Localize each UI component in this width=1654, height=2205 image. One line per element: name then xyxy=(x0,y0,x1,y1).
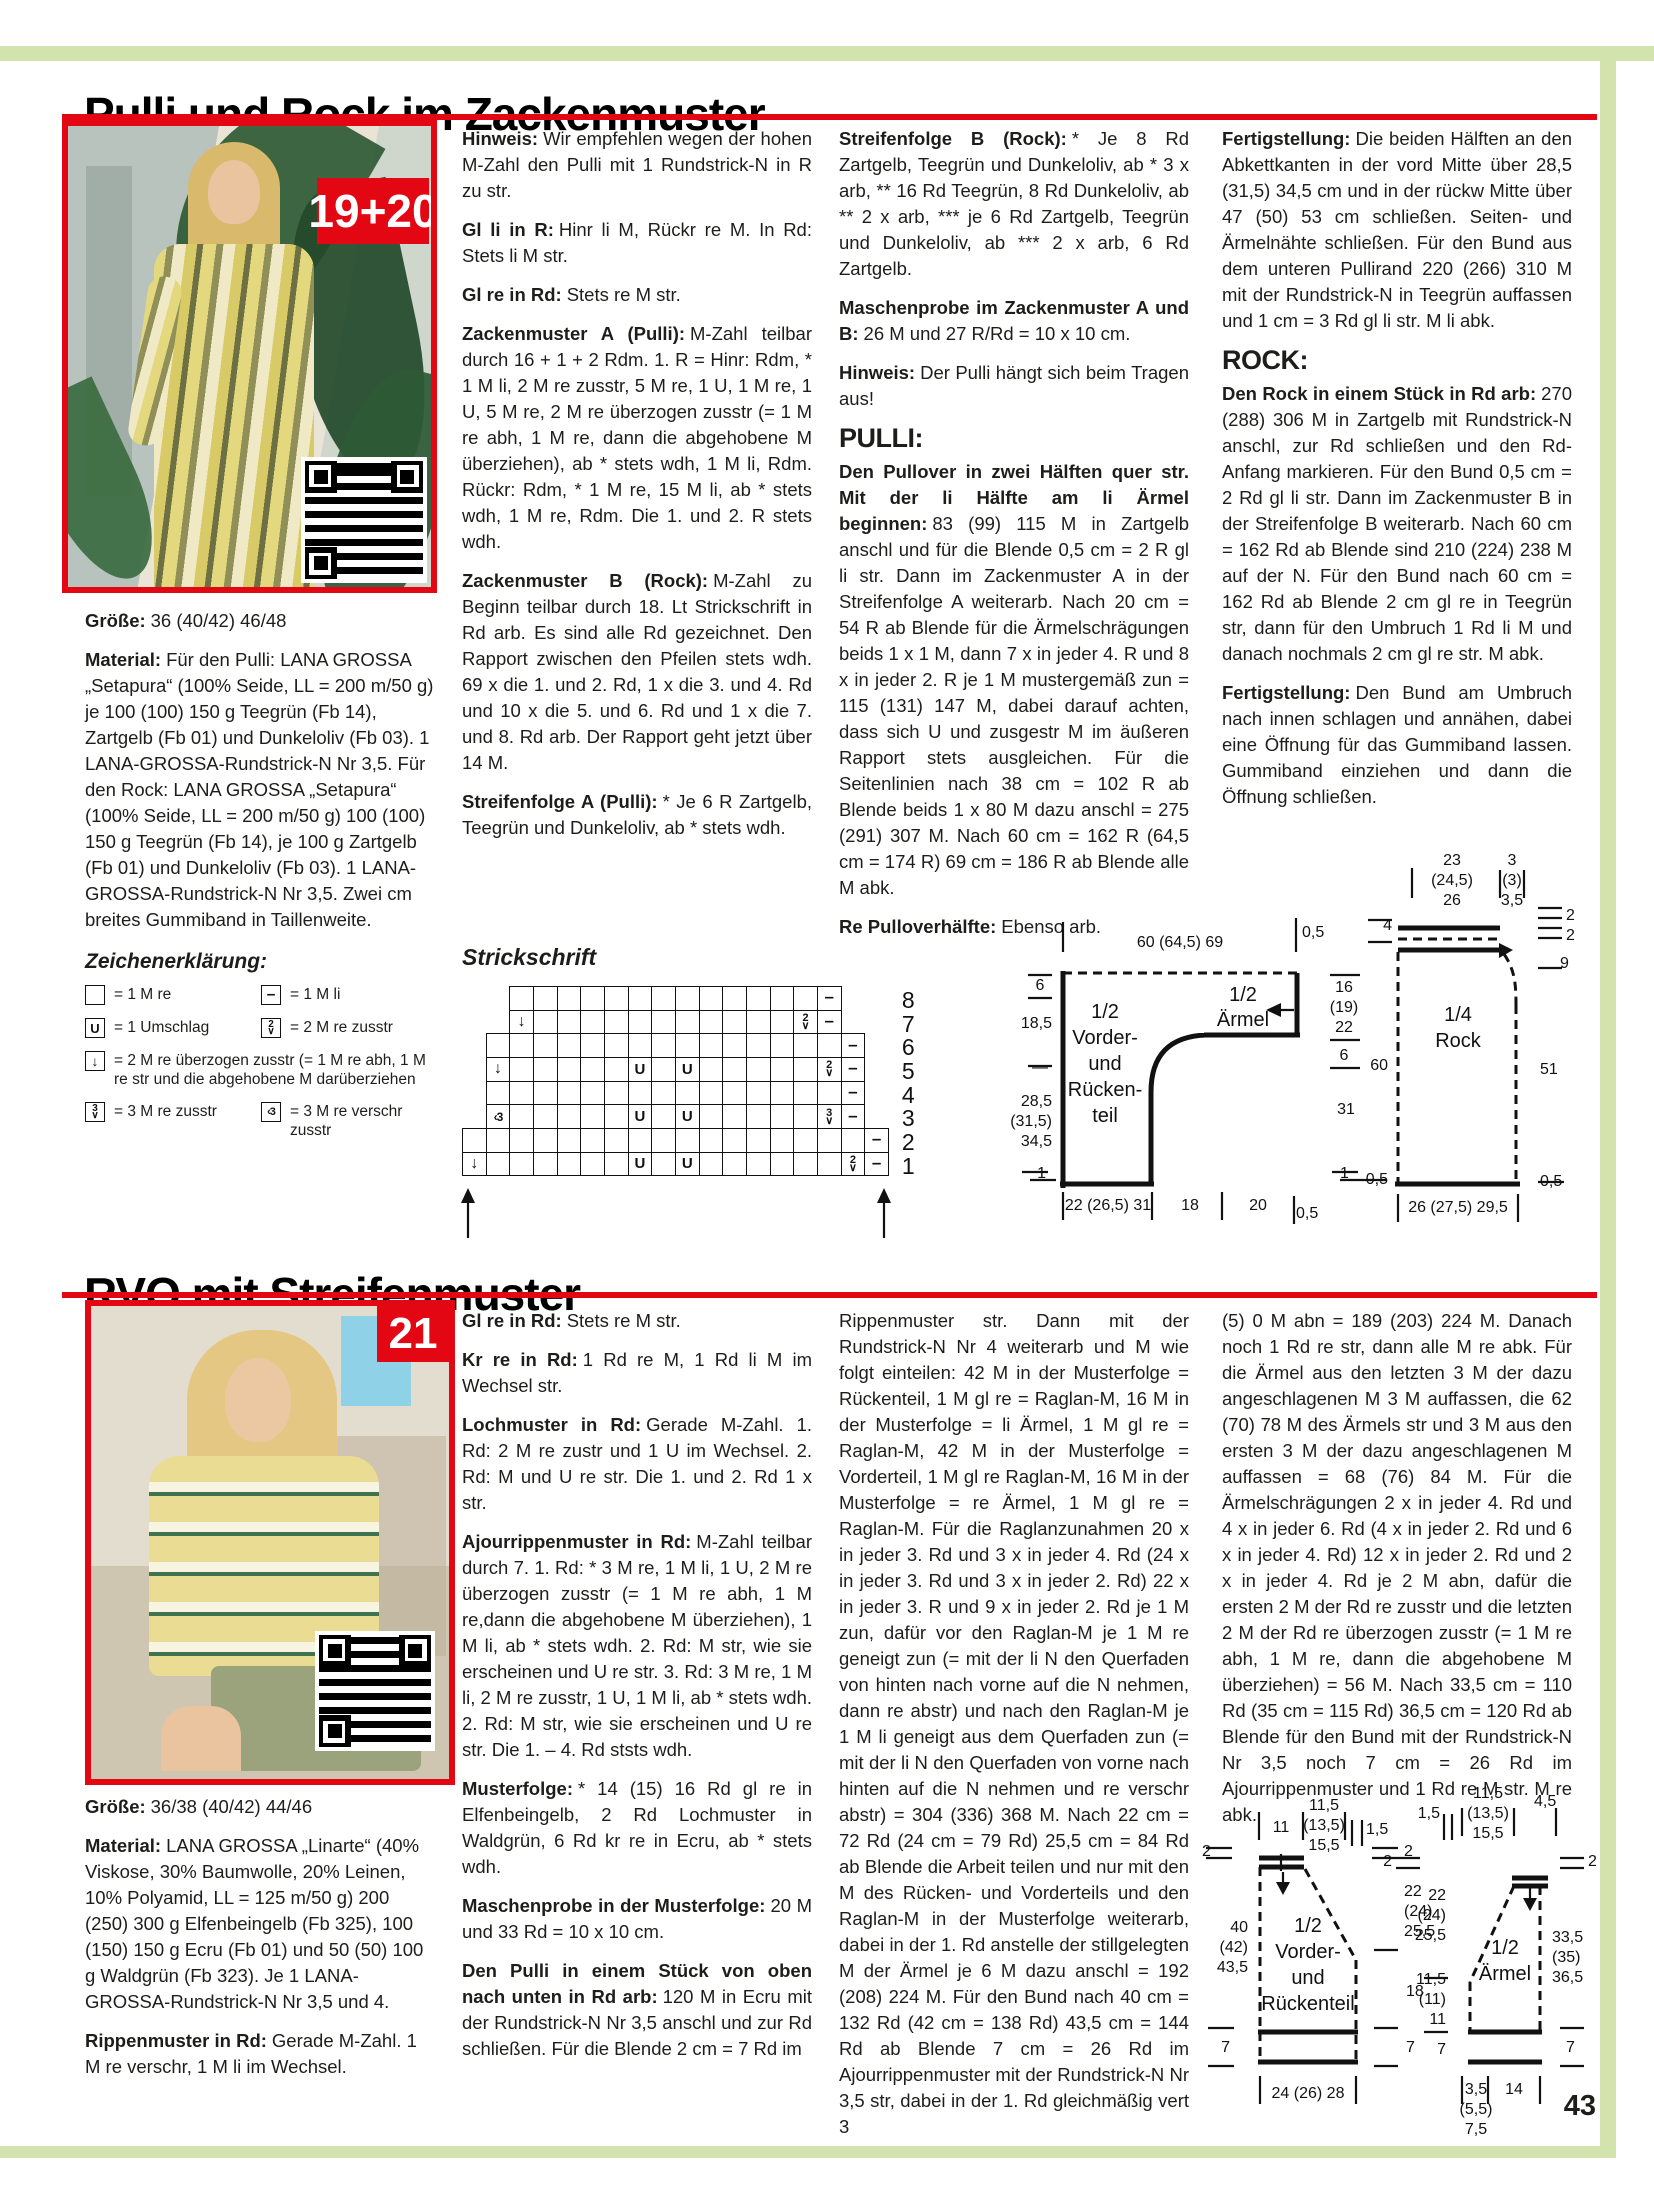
chart-cell xyxy=(817,986,842,1011)
chart-cell xyxy=(864,1128,889,1153)
paragraph: Zackenmuster B (Rock):M-Zahl zu Beginn t… xyxy=(462,568,812,776)
measurement-label: 60 (64,5) 69 xyxy=(1137,935,1223,951)
measurement-label: 2 xyxy=(1588,1854,1597,1870)
chart-cell xyxy=(628,1010,653,1035)
chart-cell xyxy=(651,1104,676,1129)
measurement-label: 18 xyxy=(1181,1198,1199,1214)
chart-cell xyxy=(557,1033,582,1058)
section1-column4: Fertigstellung:Die beiden Hälften an den… xyxy=(1222,126,1572,823)
chart-cell xyxy=(841,1033,866,1058)
paragraph: Fertigstellung:Den Bund am Umbruch nach … xyxy=(1222,680,1572,810)
measurement-label: 2 xyxy=(1404,1844,1413,1860)
chart-cell xyxy=(486,1033,511,1058)
chart-cell xyxy=(817,1057,842,1082)
chart-cell xyxy=(699,1128,724,1153)
chart-cell xyxy=(722,1010,747,1035)
chart-cell xyxy=(509,1033,534,1058)
qr-code xyxy=(301,457,427,583)
chart-cell xyxy=(628,986,653,1011)
model-face xyxy=(208,160,260,224)
chart-cell xyxy=(793,1057,818,1082)
chart-cell xyxy=(722,1152,747,1177)
chart-title: Strickschrift xyxy=(462,944,596,971)
legend-item: = 1 M li xyxy=(261,985,437,1005)
chart-cell xyxy=(675,986,700,1011)
photo-model-striped-sweater: 21 xyxy=(85,1300,455,1785)
paragraph: Gl li in R:Hinr li M, Rückr re M. In Rd:… xyxy=(462,217,812,269)
paragraph: Kr re in Rd:1 Rd re M, 1 Rd li M im Wech… xyxy=(462,1347,812,1399)
chart-cell xyxy=(793,1128,818,1153)
measurement-label: 11 xyxy=(1273,1820,1290,1836)
instructions-paragraph: (5) 0 M abn = 189 (203) 224 M. Danach no… xyxy=(1222,1308,1572,1828)
paragraph: Maschenprobe in der Musterfolge:20 M und… xyxy=(462,1893,812,1945)
section2-column1: Größe:36/38 (40/42) 44/46 Material:LANA … xyxy=(85,1794,437,2093)
measurement-label: Vorder- xyxy=(1275,1942,1341,1962)
chart-cell xyxy=(604,1081,629,1106)
chart-cell xyxy=(841,1128,866,1153)
chart-cell xyxy=(770,1057,795,1082)
paragraph: Streifenfolge B (Rock):* Je 8 Rd Zartgel… xyxy=(839,126,1189,282)
size-line: Größe:36 (40/42) 46/48 xyxy=(85,608,437,634)
chart-cell xyxy=(651,1152,676,1177)
measurement-label: (11) xyxy=(1419,1992,1446,2008)
chart-cell xyxy=(770,986,795,1011)
measurement-label: und xyxy=(1088,1054,1121,1074)
chart-cell xyxy=(675,1033,700,1058)
chart-cell xyxy=(580,1081,605,1106)
measurement-label: — xyxy=(1032,1060,1048,1076)
chart-cell xyxy=(509,1081,534,1106)
chart-cell xyxy=(628,1128,653,1153)
column-subheading: ROCK: xyxy=(1222,347,1572,373)
measurement-label: (19) xyxy=(1330,1000,1358,1016)
paragraph: Den Pulli in einem Stück von oben nach u… xyxy=(462,1958,812,2062)
measurement-label: (42) xyxy=(1220,1940,1248,1956)
measurement-label: 22 (26,5) 31 xyxy=(1065,1198,1151,1214)
skp-symbol-icon xyxy=(85,1051,105,1071)
section2-red-rule xyxy=(62,1292,1597,1298)
measurement-label: 51 xyxy=(1540,1062,1558,1078)
chart-cell xyxy=(817,1033,842,1058)
chart-cell xyxy=(628,1033,653,1058)
chart-cell xyxy=(722,986,747,1011)
chart-cell xyxy=(604,1057,629,1082)
page-number: 43 xyxy=(1500,2090,1596,2123)
measurement-label: 7 xyxy=(1566,2040,1575,2056)
chart-cell xyxy=(746,1081,771,1106)
paragraph: Zackenmuster A (Pulli):M-Zahl teilbar du… xyxy=(462,321,812,555)
chart-cell xyxy=(675,1057,700,1082)
chart-cell xyxy=(580,1104,605,1129)
measurement-label: 1 xyxy=(1037,1166,1046,1182)
chart-cell xyxy=(793,986,818,1011)
legend-item: = 1 Umschlag xyxy=(85,1018,261,1038)
ribbing-paragraph: Rippenmuster in Rd:Gerade M-Zahl. 1 M re… xyxy=(85,2028,437,2080)
measurement-label: 26 xyxy=(1443,893,1461,909)
measurement-label: (5,5) xyxy=(1460,2102,1493,2118)
paragraph: Hinweis:Der Pulli hängt sich beim Tragen… xyxy=(839,360,1189,412)
chart-cell xyxy=(770,1128,795,1153)
legend-item: = 2 M re zusstr xyxy=(261,1018,437,1038)
k3tog-symbol-icon xyxy=(85,1102,105,1122)
measurement-label: 2 xyxy=(1202,1844,1211,1860)
measurement-label: 15,5 xyxy=(1472,1826,1503,1842)
chart-cell xyxy=(557,1010,582,1035)
measurement-label: 1/2 xyxy=(1229,985,1257,1005)
paragraph: Gl re in Rd:Stets re M str. xyxy=(462,282,812,308)
chart-cell xyxy=(699,1152,724,1177)
chart-cell xyxy=(699,986,724,1011)
measurement-label: 20 xyxy=(1249,1198,1267,1214)
chart-cell xyxy=(699,1104,724,1129)
chart-cell xyxy=(509,986,534,1011)
chart-cell xyxy=(604,1128,629,1153)
chart-cell xyxy=(533,1128,558,1153)
chart-cell xyxy=(557,986,582,1011)
chart-cell xyxy=(841,1057,866,1082)
chart-cell xyxy=(557,1104,582,1129)
section2-column2: Gl re in Rd:Stets re M str.Kr re in Rd:1… xyxy=(462,1308,812,2075)
measurement-label: 2 xyxy=(1566,908,1575,924)
chart-cell xyxy=(770,1010,795,1035)
bottom-green-bar xyxy=(0,2146,1616,2158)
size-line: Größe:36/38 (40/42) 44/46 xyxy=(85,1794,437,1820)
measurement-label: 11,5 xyxy=(1416,1972,1446,1988)
chart-cell xyxy=(509,1128,534,1153)
measurement-label: (24) xyxy=(1418,1908,1446,1924)
chart-cell xyxy=(746,1152,771,1177)
paragraph: Musterfolge:* 14 (15) 16 Rd gl re in Elf… xyxy=(462,1776,812,1880)
chart-cell xyxy=(557,1057,582,1082)
measurement-label: 0,5 xyxy=(1296,1206,1318,1222)
chart-cell xyxy=(580,1010,605,1035)
chart-cell xyxy=(675,1152,700,1177)
measurement-label: 25,5 xyxy=(1415,1928,1446,1944)
chart-cell xyxy=(770,1104,795,1129)
chart-cell xyxy=(462,1128,487,1153)
chart-cell xyxy=(580,1057,605,1082)
measurement-label: und xyxy=(1291,1968,1324,1988)
chart-cell xyxy=(604,1104,629,1129)
chart-cell xyxy=(533,1152,558,1177)
chart-cell xyxy=(699,1033,724,1058)
measurement-label: 1,5 xyxy=(1418,1806,1440,1822)
measurement-label: 7,5 xyxy=(1465,2122,1487,2138)
section1-column3: Streifenfolge B (Rock):* Je 8 Rd Zartgel… xyxy=(839,126,1189,953)
measurement-label: 1,5 xyxy=(1366,1822,1388,1838)
measurement-label: 28,5 xyxy=(1021,1094,1052,1110)
paragraph: Lochmuster in Rd:Gerade M-Zahl. 1. Rd: 2… xyxy=(462,1412,812,1516)
paragraph: Hinweis:Wir empfehlen wegen der hohen M-… xyxy=(462,126,812,204)
chart-cell xyxy=(509,1010,534,1035)
size-value: 36 (40/42) 46/48 xyxy=(151,610,287,631)
model-number-badge: 19+20 xyxy=(317,178,429,244)
yo-symbol-icon xyxy=(85,1018,105,1038)
paragraph: Den Pullover in zwei Hälften quer str. M… xyxy=(839,459,1189,901)
measurement-label: 26 (27,5) 29,5 xyxy=(1408,1200,1508,1216)
chart-cell xyxy=(793,1033,818,1058)
chart-cell xyxy=(651,1010,676,1035)
chart-cell xyxy=(604,1010,629,1035)
measurement-label: 3,5 xyxy=(1501,893,1523,909)
measurement-label: 34,5 xyxy=(1021,1134,1052,1150)
chart-cell xyxy=(864,1152,889,1177)
chart-cell xyxy=(746,1010,771,1035)
photo-model-zigzag-dress: 19+20 xyxy=(62,120,437,593)
measurement-label: Rückenteil xyxy=(1261,1994,1354,2014)
measurement-label: (13,5) xyxy=(1303,1818,1345,1834)
chart-cell xyxy=(604,986,629,1011)
chart-cell xyxy=(462,1152,487,1177)
chart-cell xyxy=(699,1057,724,1082)
measurement-label: 31 xyxy=(1337,1102,1355,1118)
chart-cell xyxy=(746,1104,771,1129)
chart-cell xyxy=(580,1152,605,1177)
chart-cell xyxy=(770,1033,795,1058)
chart-cell xyxy=(533,1081,558,1106)
chart-cell xyxy=(651,1081,676,1106)
chart-cell xyxy=(675,1081,700,1106)
material-paragraph: Material:LANA GROSSA „Linarte“ (40% Visk… xyxy=(85,1833,437,2015)
measurement-label: 0,5 xyxy=(1366,1172,1388,1188)
chart-cell xyxy=(699,1010,724,1035)
chart-cell xyxy=(817,1010,842,1035)
chart-cell xyxy=(746,1128,771,1153)
measurement-label: 4 xyxy=(1383,918,1392,934)
chart-cell xyxy=(793,1081,818,1106)
chart-cell xyxy=(604,1033,629,1058)
chart-cell xyxy=(557,1152,582,1177)
measurement-label: Rock xyxy=(1435,1031,1481,1051)
section1-column1: Größe:36 (40/42) 46/48 Material:Für den … xyxy=(85,608,437,1153)
paragraph: Fertigstellung:Die beiden Hälften an den… xyxy=(1222,126,1572,334)
legend-item: = 3 M re zusstr xyxy=(85,1102,261,1140)
chart-cell xyxy=(675,1010,700,1035)
measurement-label: 43,5 xyxy=(1217,1960,1248,1976)
model2-face xyxy=(225,1358,291,1442)
chart-cell xyxy=(793,1152,818,1177)
chart-cell xyxy=(628,1057,653,1082)
chart-cell xyxy=(722,1128,747,1153)
section1-column2: Hinweis:Wir empfehlen wegen der hohen M-… xyxy=(462,126,812,854)
measurement-label: 9 xyxy=(1560,956,1569,972)
measurement-label: 24 (26) 28 xyxy=(1272,2086,1345,2102)
measurement-label: 11,5 xyxy=(1473,1786,1503,1802)
chart-cell xyxy=(486,1081,511,1106)
measurement-label: 22 xyxy=(1404,1884,1422,1900)
measurement-label: 15,5 xyxy=(1308,1838,1339,1854)
measurement-label: 2 xyxy=(1383,1854,1392,1870)
measurement-label: 2 xyxy=(1566,928,1575,944)
measurement-label: teil xyxy=(1092,1106,1118,1126)
chart-cell xyxy=(557,1128,582,1153)
measurement-label: 7 xyxy=(1406,2040,1415,2056)
measurement-label: 0,5 xyxy=(1540,1174,1562,1190)
measurement-label: 3 xyxy=(1508,853,1517,869)
measurement-label: 16 xyxy=(1335,980,1353,996)
chart-cell xyxy=(557,1081,582,1106)
measurement-label: 22 xyxy=(1428,1888,1446,1904)
measurement-label: 1/2 xyxy=(1294,1916,1322,1936)
chart-cell xyxy=(509,1057,534,1082)
measurement-label: 1/4 xyxy=(1444,1005,1472,1025)
chart-cell xyxy=(722,1104,747,1129)
chart-cell xyxy=(628,1081,653,1106)
measurement-label: 1/2 xyxy=(1491,1938,1519,1958)
chart-cell xyxy=(533,1104,558,1129)
chart-cell xyxy=(793,1010,818,1035)
section2-column3: Rippenmuster str. Dann mit der Rundstric… xyxy=(839,1308,1189,2153)
chart-cell xyxy=(580,986,605,1011)
right-green-bar xyxy=(1600,46,1616,2158)
legend-item: = 2 M re überzogen zusstr (= 1 M re abh,… xyxy=(85,1051,437,1089)
measurement-label: 22 xyxy=(1335,1020,1353,1036)
chart-cell xyxy=(699,1081,724,1106)
legend-item: = 1 M re xyxy=(85,985,261,1005)
chart-cell xyxy=(675,1128,700,1153)
chart-cell xyxy=(486,1128,511,1153)
measurement-label: 1 xyxy=(1340,1166,1349,1182)
qr-code xyxy=(315,1631,435,1751)
chart-cell xyxy=(628,1152,653,1177)
chart-cell xyxy=(580,1128,605,1153)
k3tbl-symbol-icon xyxy=(261,1102,281,1122)
symbol-legend: = 1 M re= 1 M li= 1 Umschlag= 2 M re zus… xyxy=(85,985,437,1153)
material-label: Material: xyxy=(85,649,161,670)
chart-cell xyxy=(533,1057,558,1082)
measurement-label: Ärmel xyxy=(1217,1010,1269,1030)
chart-cell xyxy=(746,986,771,1011)
chart-cell xyxy=(722,1033,747,1058)
paragraph: Ajourrippenmuster in Rd:M-Zahl teilbar d… xyxy=(462,1529,812,1763)
size-label: Größe: xyxy=(85,610,146,631)
measurement-label: 6 xyxy=(1036,978,1045,994)
measurement-label: Vorder- xyxy=(1072,1028,1138,1048)
chart-cell xyxy=(651,1128,676,1153)
measurement-label: (35) xyxy=(1552,1950,1580,1966)
chart-cell xyxy=(746,1057,771,1082)
chart-cell xyxy=(841,1152,866,1177)
paragraph: Gl re in Rd:Stets re M str. xyxy=(462,1308,812,1334)
material-paragraph: Material:Für den Pulli: LANA GROSSA „Set… xyxy=(85,647,437,933)
measurement-label: 33,5 xyxy=(1552,1930,1583,1946)
chart-cell xyxy=(817,1128,842,1153)
paragraph: Streifenfolge A (Pulli):* Je 6 R Zartgel… xyxy=(462,789,812,841)
k-symbol-icon xyxy=(85,985,105,1005)
chart-cell xyxy=(651,1057,676,1082)
chart-cell xyxy=(841,1104,866,1129)
measurement-label: 11 xyxy=(1429,2012,1446,2028)
magazine-page: Pulli und Rock im Zackenmuster 19+20 Grö… xyxy=(0,0,1654,2205)
chart-cell xyxy=(533,1010,558,1035)
measurement-label: 18,5 xyxy=(1021,1016,1052,1032)
chart-cell xyxy=(675,1104,700,1129)
paragraph: Maschenprobe im Zackenmuster A und B:26 … xyxy=(839,295,1189,347)
measurement-label: 11,5 xyxy=(1309,1798,1339,1814)
chart-cell xyxy=(817,1081,842,1106)
chart-cell xyxy=(533,1033,558,1058)
model-number-badge: 21 xyxy=(377,1306,449,1362)
chart-cell xyxy=(722,1057,747,1082)
chart-cell xyxy=(841,1081,866,1106)
chart-cell xyxy=(817,1104,842,1129)
measurement-label: 7 xyxy=(1437,2042,1446,2058)
chart-cell xyxy=(793,1104,818,1129)
measurement-label: 4,5 xyxy=(1534,1794,1556,1810)
chart-cell xyxy=(604,1152,629,1177)
k2tog-symbol-icon xyxy=(261,1018,281,1038)
chart-cell xyxy=(509,1104,534,1129)
chart-cell xyxy=(486,1104,511,1129)
measurement-label: 3,5 xyxy=(1465,2082,1487,2098)
chart-cell xyxy=(651,1033,676,1058)
legend-title: Zeichenerklärung: xyxy=(85,949,437,975)
chart-cell xyxy=(486,1057,511,1082)
chart-cell xyxy=(746,1033,771,1058)
section2-column4: (5) 0 M abn = 189 (203) 224 M. Danach no… xyxy=(1222,1308,1572,1841)
top-green-bar xyxy=(0,46,1654,61)
measurement-label: 1/2 xyxy=(1091,1002,1119,1022)
p-symbol-icon xyxy=(261,985,281,1005)
measurement-label: 7 xyxy=(1221,2040,1230,2056)
chart-cell xyxy=(770,1081,795,1106)
chart-cell xyxy=(770,1152,795,1177)
chart-cell xyxy=(580,1033,605,1058)
measurement-label: 23 xyxy=(1443,853,1461,869)
measurement-label: 40 xyxy=(1230,1920,1248,1936)
chart-cell xyxy=(533,986,558,1011)
measurement-label: 36,5 xyxy=(1552,1970,1583,1986)
measurement-label: 6 xyxy=(1340,1048,1349,1064)
measurement-label: (3) xyxy=(1502,873,1522,889)
measurement-label: (13,5) xyxy=(1467,1806,1509,1822)
chart-cell xyxy=(651,986,676,1011)
measurement-label: 60 xyxy=(1370,1058,1388,1074)
chart-cell xyxy=(722,1081,747,1106)
chart-cell xyxy=(509,1152,534,1177)
measurement-label: (24,5) xyxy=(1431,873,1473,889)
paragraph: Den Rock in einem Stück in Rd arb:270 (2… xyxy=(1222,381,1572,667)
measurement-label: Rücken- xyxy=(1068,1080,1142,1100)
legend-item: = 3 M re verschr zusstr xyxy=(261,1102,437,1140)
instructions-paragraph: Rippenmuster str. Dann mit der Rundstric… xyxy=(839,1308,1189,2140)
chart-cell xyxy=(628,1104,653,1129)
chart-row-number: 1 xyxy=(902,1153,915,1180)
chart-cell xyxy=(817,1152,842,1177)
measurement-label: (31,5) xyxy=(1010,1114,1052,1130)
chart-cell xyxy=(486,1152,511,1177)
model2-legs xyxy=(161,1706,241,1771)
column-subheading: PULLI: xyxy=(839,425,1189,451)
measurement-label: 0,5 xyxy=(1302,925,1324,941)
measurement-label: Ärmel xyxy=(1479,1964,1531,1984)
